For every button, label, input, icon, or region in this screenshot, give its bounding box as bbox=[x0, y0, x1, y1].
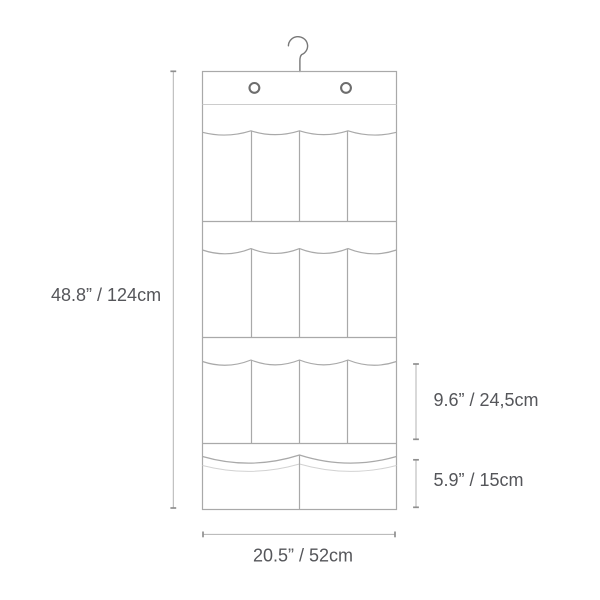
svg-text:5.9” / 15cm: 5.9” / 15cm bbox=[434, 470, 524, 490]
svg-text:9.6” / 24,5cm: 9.6” / 24,5cm bbox=[434, 390, 539, 410]
svg-text:48.8” / 124cm: 48.8” / 124cm bbox=[51, 285, 161, 305]
svg-text:20.5” / 52cm: 20.5” / 52cm bbox=[253, 546, 353, 566]
